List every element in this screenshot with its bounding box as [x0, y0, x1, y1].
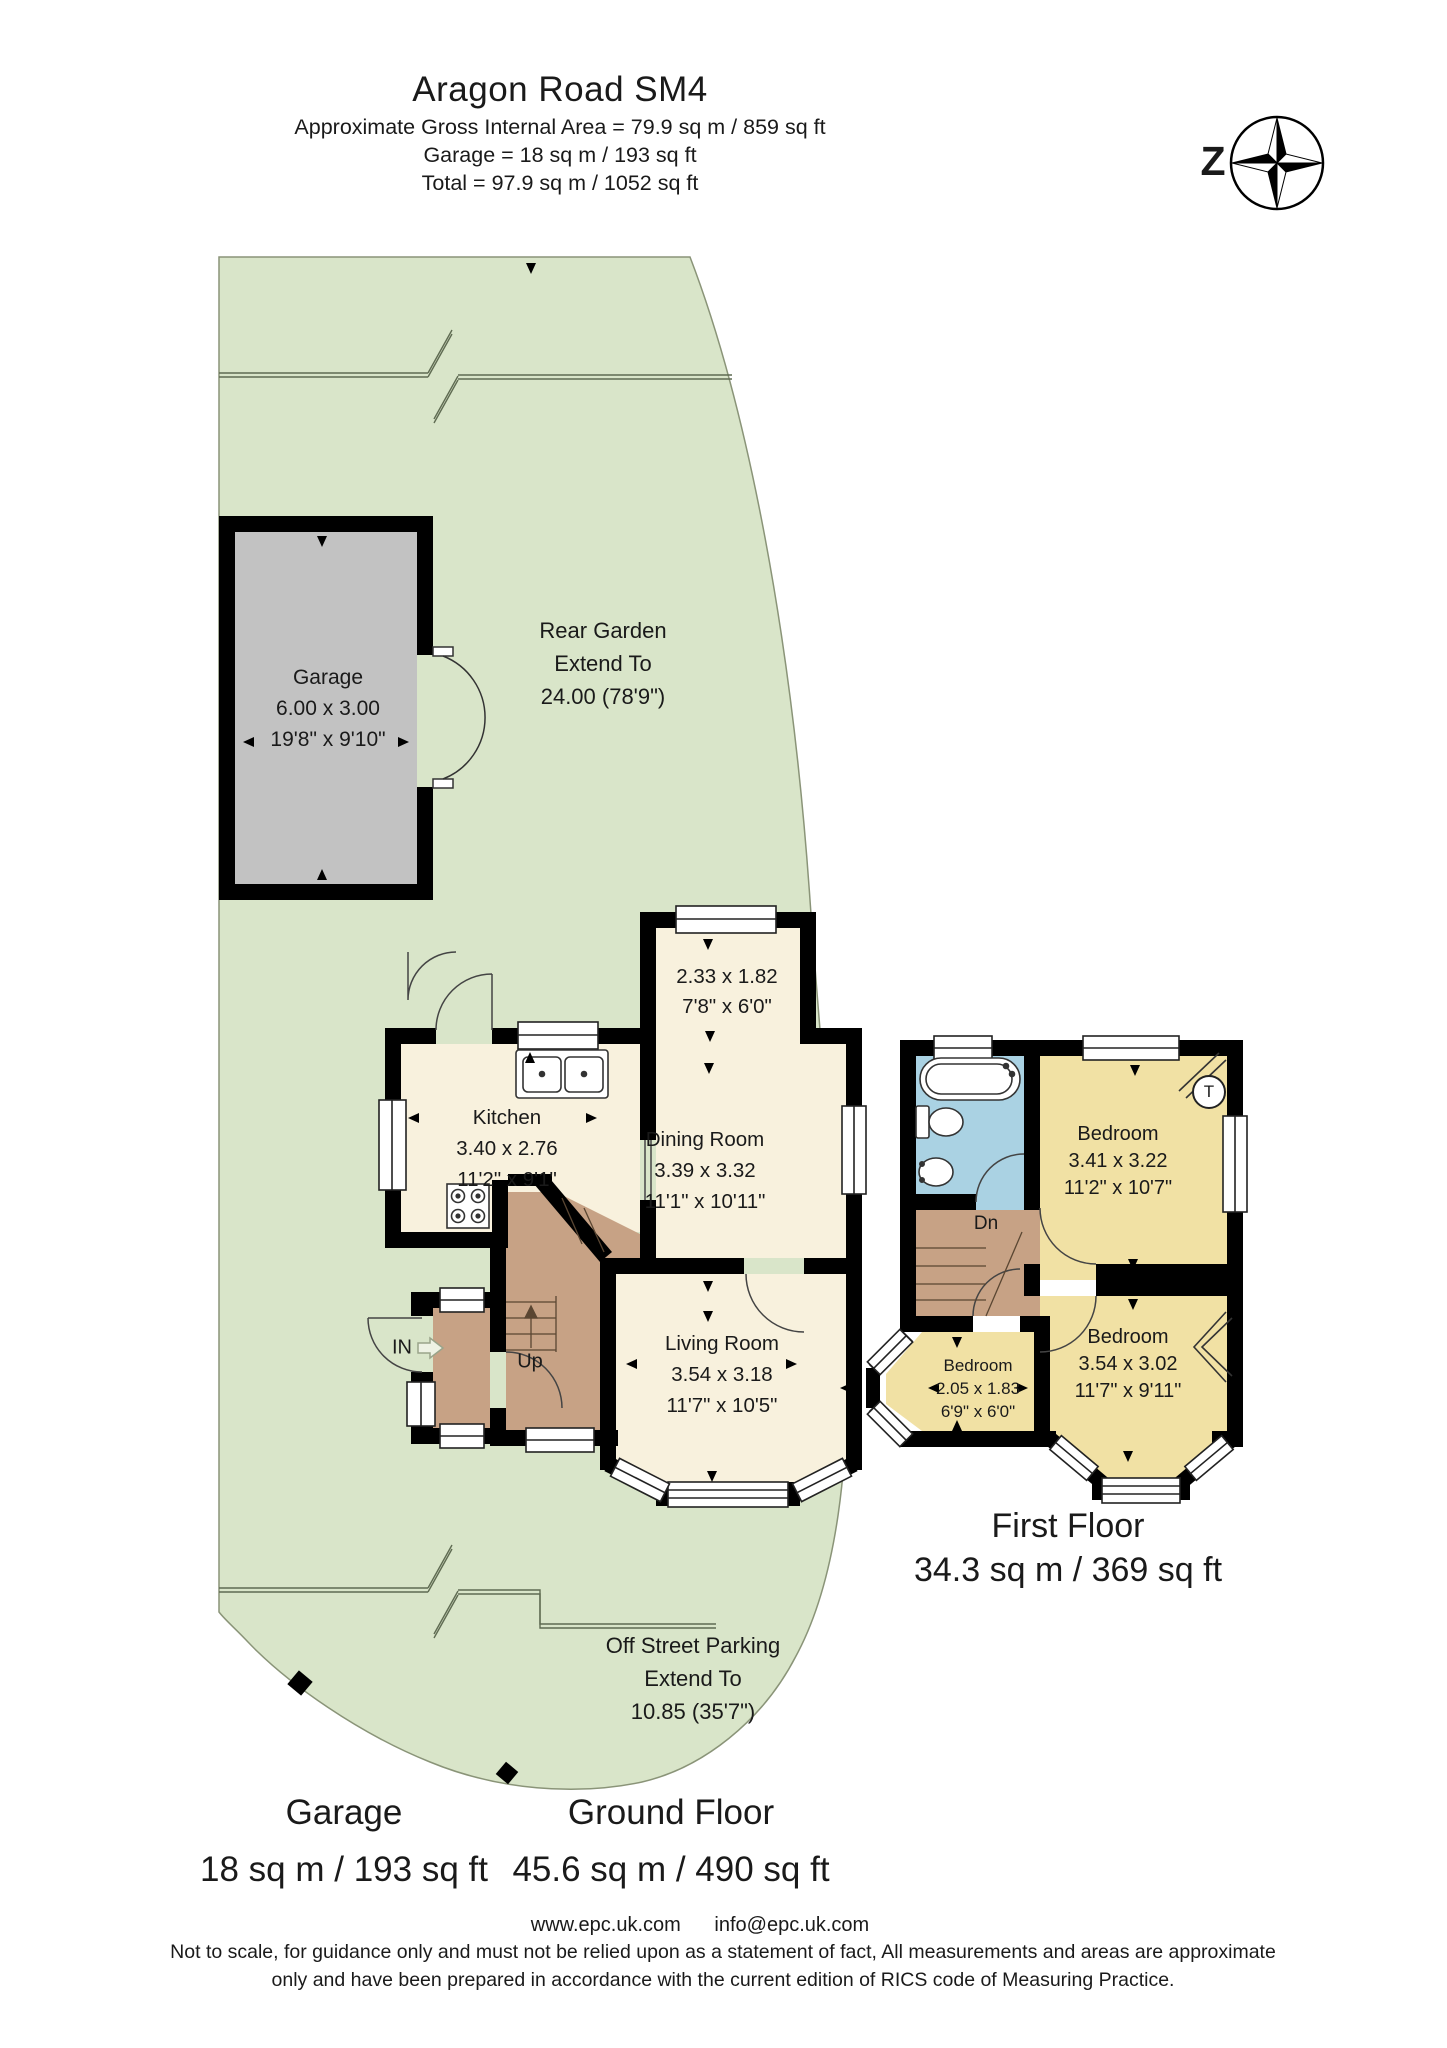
- garage-imperial: 19'8" x 9'10": [270, 724, 385, 755]
- kitchen-imperial: 11'2" x 9'1": [456, 1164, 557, 1195]
- dining-room-label: Dining Room 3.39 x 3.32 11'1" x 10'11": [645, 1124, 766, 1217]
- parking-line1: Off Street Parking: [606, 1629, 780, 1662]
- living-room-label: Living Room 3.54 x 3.18 11'7" x 10'5": [665, 1328, 779, 1421]
- disclaimer-line2: only and have been prepared in accordanc…: [170, 1966, 1276, 1994]
- bedroom3-label: Bedroom 3.54 x 3.02 11'7" x 9'11": [1075, 1324, 1182, 1405]
- rear-garden-label: Rear Garden Extend To 24.00 (78'9"): [539, 614, 666, 713]
- entry-in-label: IN: [392, 1337, 412, 1360]
- rear-garden-line2: Extend To: [539, 647, 666, 680]
- bedroom3-imperial: 11'7" x 9'11": [1075, 1378, 1182, 1405]
- floorplan-page: Aragon Road SM4 Approximate Gross Intern…: [0, 0, 1447, 2048]
- bedroom2-name: Bedroom: [936, 1354, 1020, 1377]
- bay-imperial: 7'8" x 6'0": [676, 992, 777, 1022]
- bedroom1-label: Bedroom 3.41 x 3.22 11'2" x 10'7": [1064, 1121, 1172, 1202]
- garage-name: Garage: [270, 662, 385, 693]
- garage-floor-caption: Garage 18 sq m / 193 sq ft: [200, 1784, 488, 1898]
- kitchen-metric: 3.40 x 2.76: [456, 1133, 557, 1164]
- stairs-down-label: Dn: [974, 1213, 998, 1235]
- gross-internal-area: Approximate Gross Internal Area = 79.9 s…: [294, 113, 825, 141]
- compass-icon: [1231, 117, 1323, 209]
- tank-letter: T: [1204, 1082, 1214, 1102]
- ground-floor-caption: Ground Floor 45.6 sq m / 490 sq ft: [512, 1784, 829, 1898]
- garage-area-line: Garage = 18 sq m / 193 sq ft: [423, 141, 696, 169]
- kitchen-name: Kitchen: [456, 1102, 557, 1133]
- living-name: Living Room: [665, 1328, 779, 1359]
- first-floor-caption: First Floor 34.3 sq m / 369 sq ft: [914, 1504, 1222, 1592]
- website-link[interactable]: www.epc.uk.com: [531, 1914, 681, 1936]
- bedroom2-label: Bedroom 2.05 x 1.83 6'9" x 6'0": [936, 1354, 1020, 1423]
- sink-basin-icon: [919, 1158, 953, 1186]
- bedroom1-imperial: 11'2" x 10'7": [1064, 1175, 1172, 1202]
- contact-line: www.epc.uk.com info@epc.uk.com: [517, 1914, 883, 1937]
- ground-floor-area: 45.6 sq m / 490 sq ft: [512, 1841, 829, 1898]
- dining-name: Dining Room: [645, 1124, 766, 1155]
- parking-line3: 10.85 (35'7"): [606, 1695, 780, 1728]
- bedroom3-metric: 3.54 x 3.02: [1075, 1351, 1182, 1378]
- living-metric: 3.54 x 3.18: [665, 1359, 779, 1390]
- rear-garden-line1: Rear Garden: [539, 614, 666, 647]
- first-floor-area: 34.3 sq m / 369 sq ft: [914, 1548, 1222, 1592]
- garage-floor-name: Garage: [200, 1784, 488, 1841]
- bathtub-icon: [920, 1058, 1020, 1100]
- parking-label: Off Street Parking Extend To 10.85 (35'7…: [606, 1629, 780, 1728]
- bedroom1-name: Bedroom: [1064, 1121, 1172, 1148]
- bedroom1-metric: 3.41 x 3.22: [1064, 1148, 1172, 1175]
- garage-room-label: Garage 6.00 x 3.00 19'8" x 9'10": [270, 662, 385, 755]
- ground-floor-name: Ground Floor: [512, 1784, 829, 1841]
- stairs-up-label: Up: [517, 1351, 543, 1374]
- garage-floor-area: 18 sq m / 193 sq ft: [200, 1841, 488, 1898]
- compass-letter: Z: [1200, 138, 1225, 185]
- kitchen-label: Kitchen 3.40 x 2.76 11'2" x 9'1": [456, 1102, 557, 1195]
- bedroom2-metric: 2.05 x 1.83: [936, 1377, 1020, 1400]
- page-title: Aragon Road SM4: [412, 70, 707, 110]
- disclaimer: Not to scale, for guidance only and must…: [170, 1938, 1276, 1994]
- parking-line2: Extend To: [606, 1662, 780, 1695]
- bedroom3-name: Bedroom: [1075, 1324, 1182, 1351]
- toilet-icon: [916, 1106, 963, 1138]
- bedroom2-imperial: 6'9" x 6'0": [936, 1400, 1020, 1423]
- dining-metric: 3.39 x 3.32: [645, 1155, 766, 1186]
- dining-imperial: 11'1" x 10'11": [645, 1186, 766, 1217]
- disclaimer-line1: Not to scale, for guidance only and must…: [170, 1938, 1276, 1966]
- garage-metric: 6.00 x 3.00: [270, 693, 385, 724]
- floor-plan-graphic: [0, 0, 1447, 2048]
- living-imperial: 11'7" x 10'5": [665, 1390, 779, 1421]
- first-floor-name: First Floor: [914, 1504, 1222, 1548]
- bay-room-label: 2.33 x 1.82 7'8" x 6'0": [676, 962, 777, 1022]
- email-link[interactable]: info@epc.uk.com: [714, 1914, 869, 1936]
- total-area-line: Total = 97.9 sq m / 1052 sq ft: [422, 169, 699, 197]
- rear-garden-line3: 24.00 (78'9"): [539, 680, 666, 713]
- bay-metric: 2.33 x 1.82: [676, 962, 777, 992]
